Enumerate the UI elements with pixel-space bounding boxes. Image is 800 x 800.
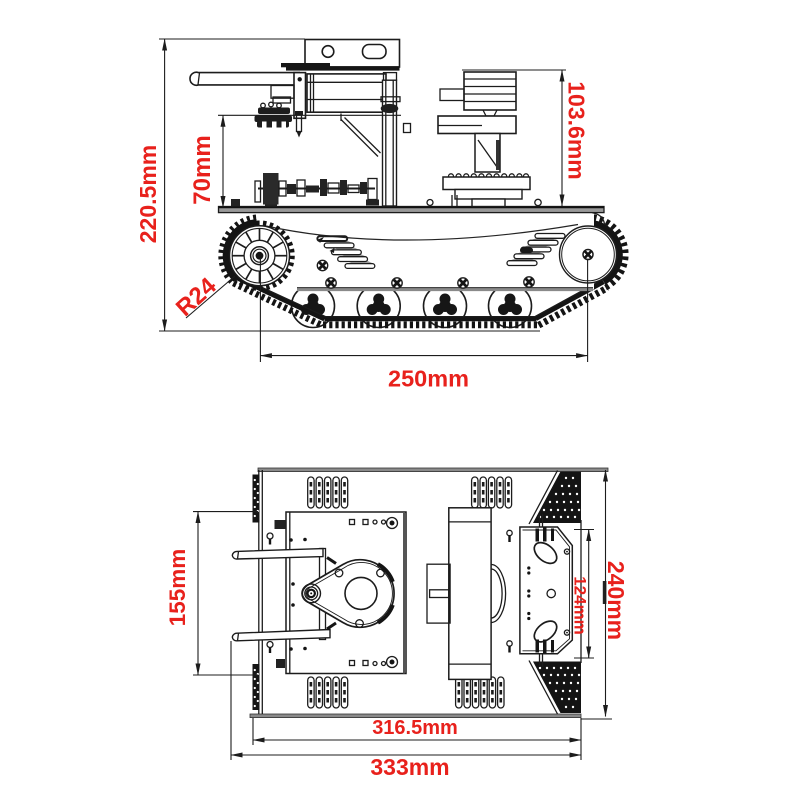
svg-text:103.6mm: 103.6mm	[564, 81, 590, 179]
svg-text:240mm: 240mm	[603, 561, 629, 640]
svg-text:250mm: 250mm	[388, 366, 469, 392]
svg-text:155mm: 155mm	[165, 549, 190, 627]
svg-text:220.5mm: 220.5mm	[135, 145, 161, 243]
svg-text:124mm: 124mm	[571, 576, 590, 635]
svg-text:333mm: 333mm	[370, 754, 449, 780]
svg-text:70mm: 70mm	[189, 135, 216, 204]
svg-text:316.5mm: 316.5mm	[372, 717, 458, 739]
